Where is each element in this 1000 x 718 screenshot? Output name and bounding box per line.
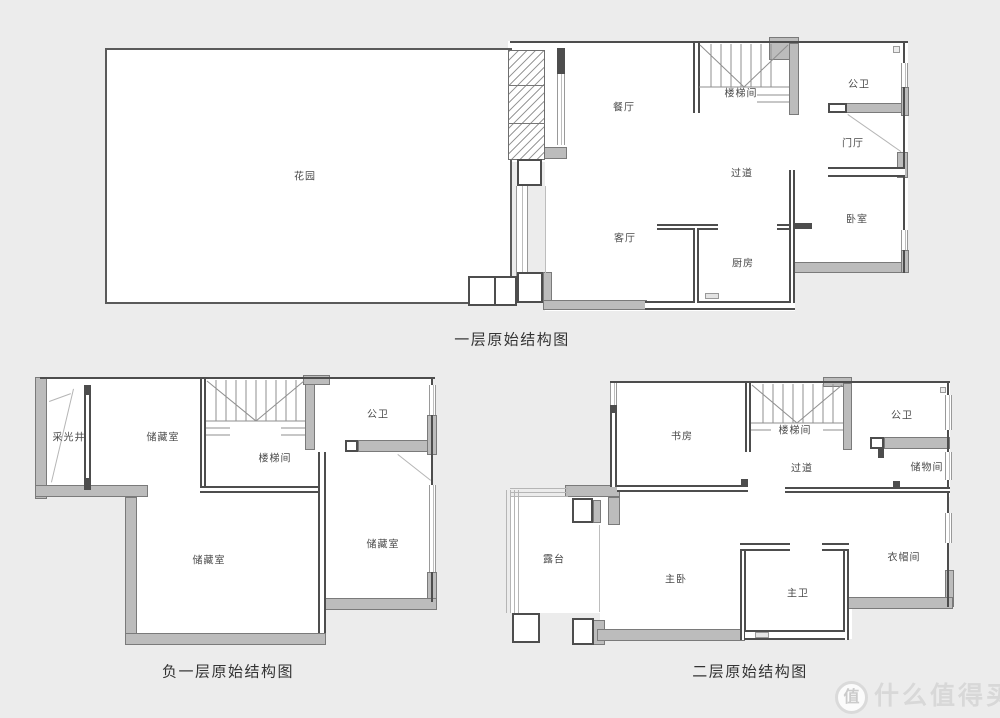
- second-floor-plan: 书房 楼梯间 公卫 过道 储物间 露台 主卧 主卫 衣帽间 二层原始结构图: [0, 0, 1000, 718]
- window-symbol: [945, 395, 952, 430]
- window-symbol: [610, 383, 617, 405]
- corner-marker: [940, 387, 946, 393]
- room-label-hallway: 过道: [791, 460, 813, 475]
- terrace-step: [512, 613, 540, 643]
- room-label-terrace: 露台: [543, 551, 565, 566]
- wall: [843, 547, 849, 640]
- wall: [893, 481, 900, 487]
- background-patch: [852, 609, 960, 645]
- window-symbol: [945, 452, 952, 480]
- room-label-master-bedroom: 主卧: [665, 571, 687, 586]
- wall: [884, 437, 950, 449]
- terrace-step: [572, 618, 594, 645]
- wall: [610, 413, 617, 487]
- room-label-public-bath: 公卫: [891, 407, 913, 422]
- room-label-study: 书房: [671, 428, 693, 443]
- wall: [878, 449, 884, 458]
- wall: [610, 405, 617, 413]
- door-leaf: [870, 437, 884, 449]
- wall: [593, 500, 601, 523]
- wall: [608, 497, 620, 525]
- room-label-storage: 储物间: [911, 459, 944, 474]
- floorplan-sheet: 花园 餐厅 楼梯间 公卫 门厅 过道 卧室 客厅 厨房 一层原始结构图: [0, 0, 1000, 718]
- wall: [822, 543, 849, 551]
- wall: [785, 487, 950, 493]
- caption-second-floor: 二层原始结构图: [692, 661, 808, 682]
- fixture-symbol: [755, 632, 769, 638]
- window-symbol: [945, 513, 952, 543]
- room-label-master-bath: 主卫: [787, 585, 809, 600]
- watermark-brand-text: 什么值得买: [874, 676, 1000, 712]
- room-label-stairwell: 楼梯间: [779, 422, 812, 437]
- wall: [843, 383, 852, 450]
- terrace-railing: [506, 490, 519, 613]
- terrace-boundary: [599, 525, 600, 612]
- wall: [740, 543, 790, 551]
- wall: [845, 597, 953, 609]
- wall: [740, 551, 746, 640]
- wall: [741, 479, 748, 485]
- terrace-railing: [510, 486, 568, 497]
- watermark-badge-icon: 值: [835, 681, 868, 714]
- wall: [597, 629, 745, 641]
- wall: [617, 485, 748, 492]
- room-label-closet: 衣帽间: [888, 549, 921, 564]
- pier: [572, 498, 593, 523]
